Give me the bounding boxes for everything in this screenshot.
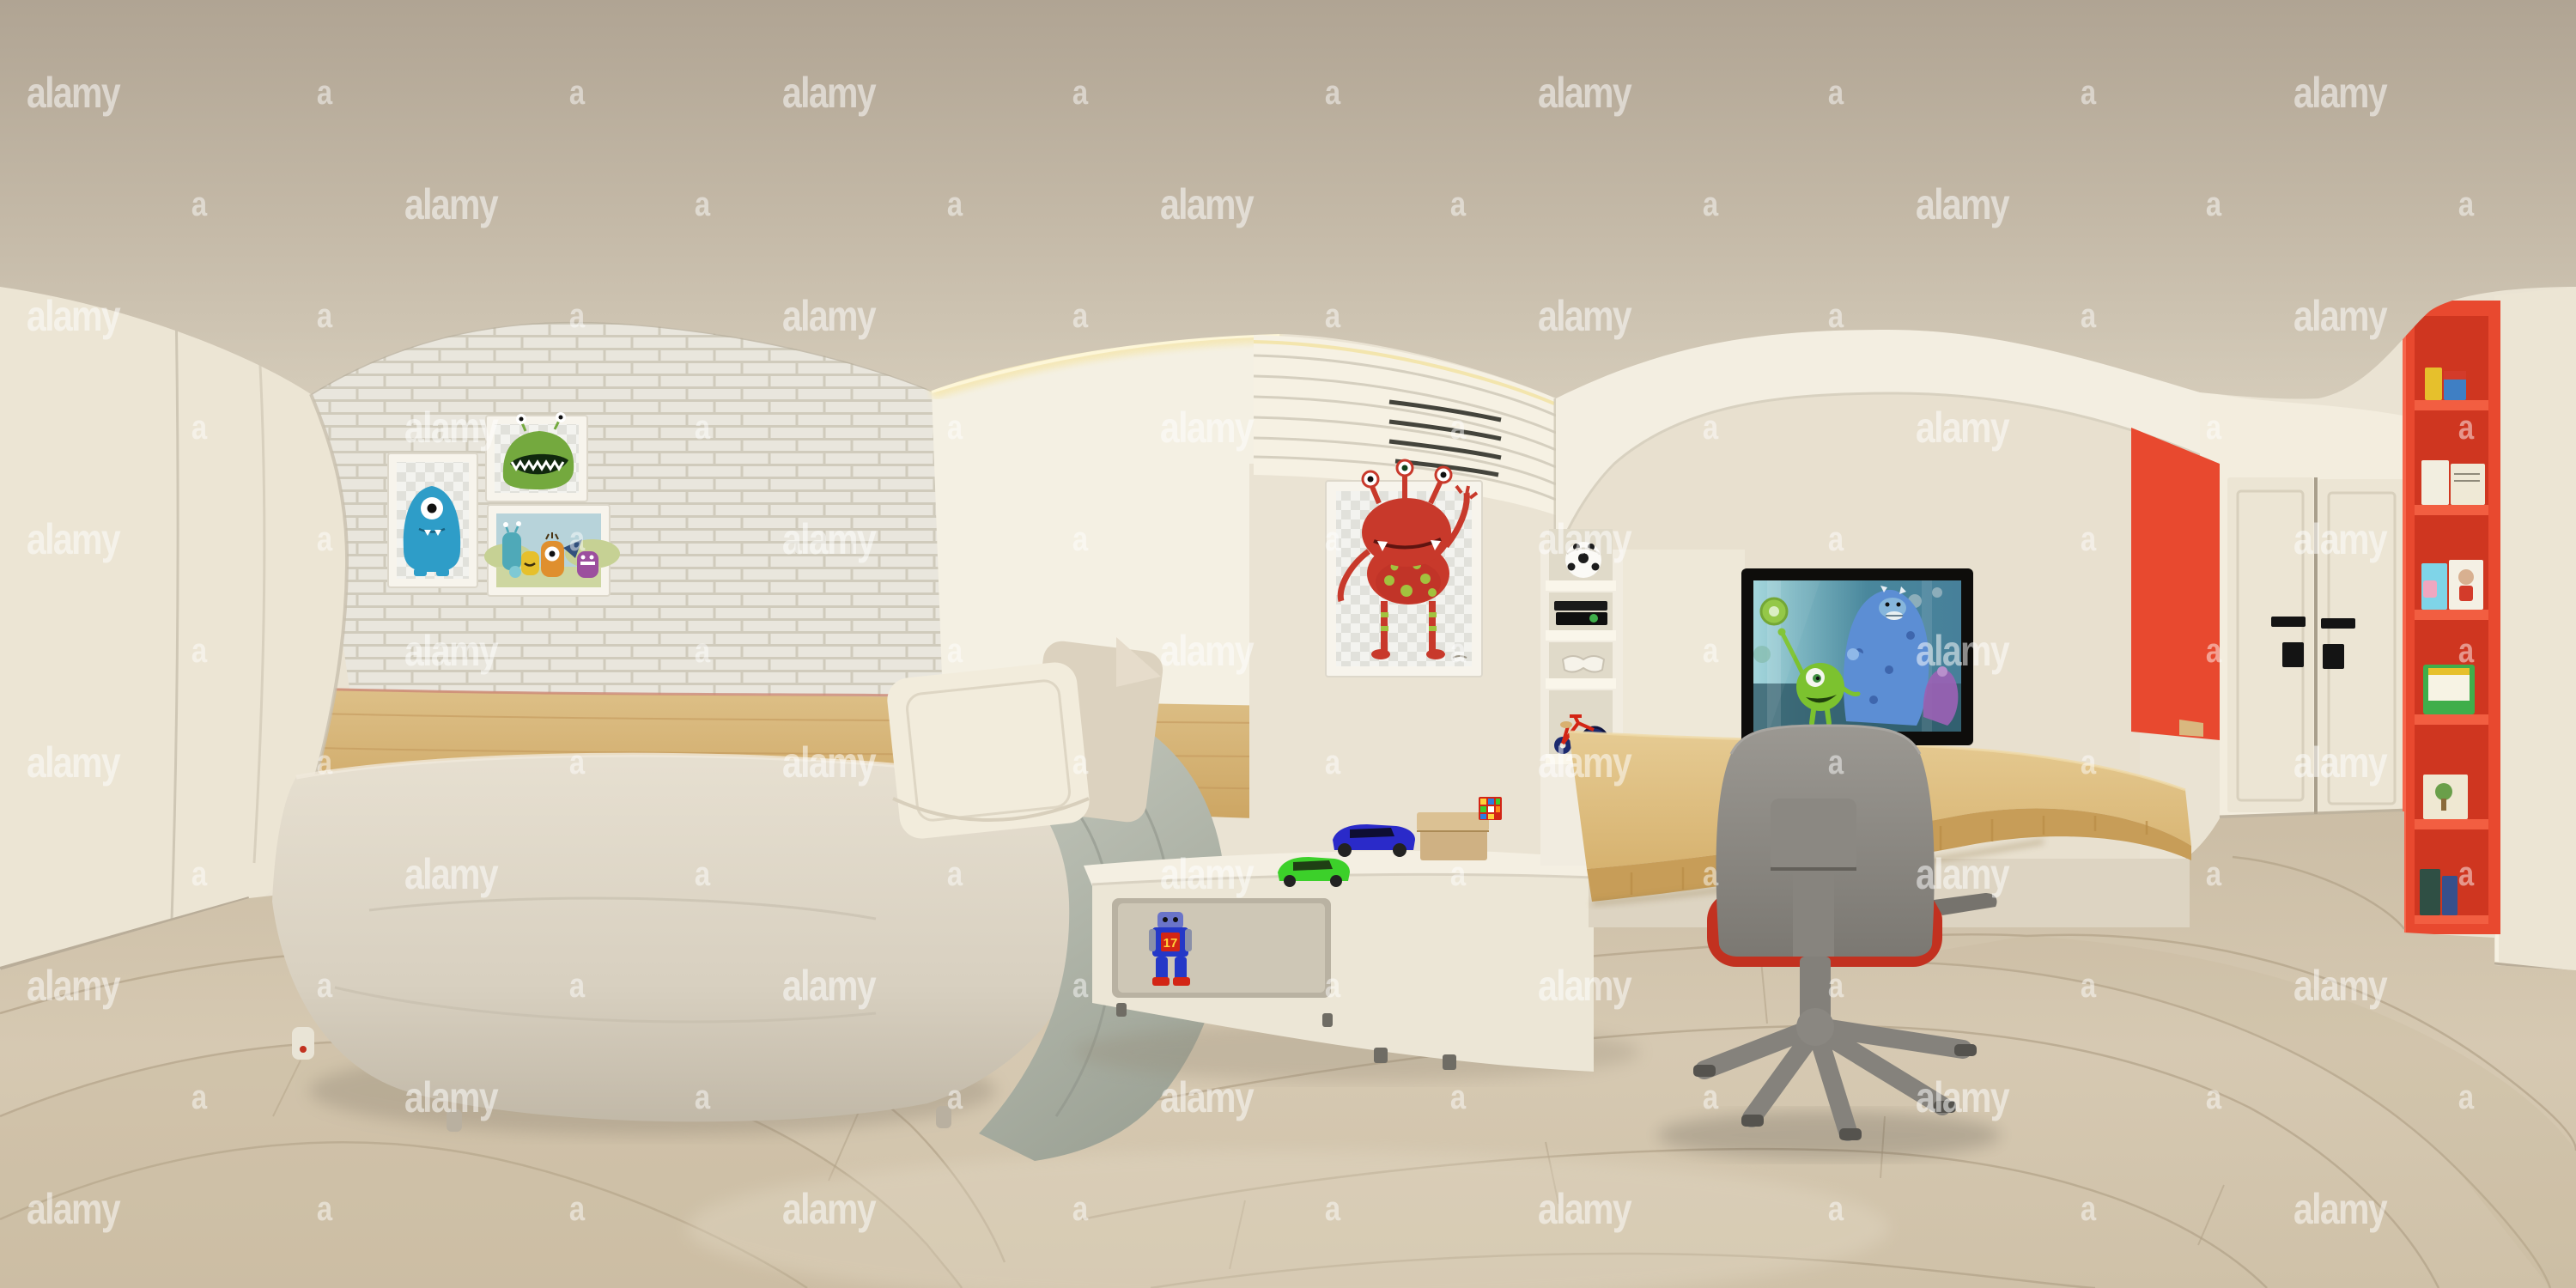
books-shelf-5 xyxy=(2423,775,2468,819)
books-shelf-6 xyxy=(2420,869,2458,915)
robot-chest-number: 17 xyxy=(1163,936,1178,951)
books-shelf-2 xyxy=(2421,460,2485,505)
door-handle-right xyxy=(2321,618,2355,629)
puzzle-cube xyxy=(1479,797,1502,820)
chair-back-plate xyxy=(1771,799,1856,871)
right-wardrobe xyxy=(2494,287,2576,972)
game-console xyxy=(1554,601,1607,625)
wooden-box xyxy=(1417,812,1489,860)
red-bookshelf xyxy=(2403,301,2500,934)
poster-blue-monster xyxy=(388,453,477,587)
soccer-ball xyxy=(1565,542,1601,578)
double-doors xyxy=(2200,391,2413,820)
room-render: 17 xyxy=(0,0,2576,1288)
poster-red-monster xyxy=(1326,460,1482,677)
books-shelf-1 xyxy=(2425,368,2466,400)
tv-screen xyxy=(1753,580,1961,732)
poster-green-monster xyxy=(486,412,587,501)
books-shelf-4 xyxy=(2423,665,2475,714)
door-handle-left xyxy=(2271,617,2306,627)
stock-photo-panorama: 17 xyxy=(0,0,2576,1288)
red-accent-wall xyxy=(2131,428,2220,740)
books-shelf-3 xyxy=(2421,560,2483,610)
poster-monster-group xyxy=(484,505,620,596)
